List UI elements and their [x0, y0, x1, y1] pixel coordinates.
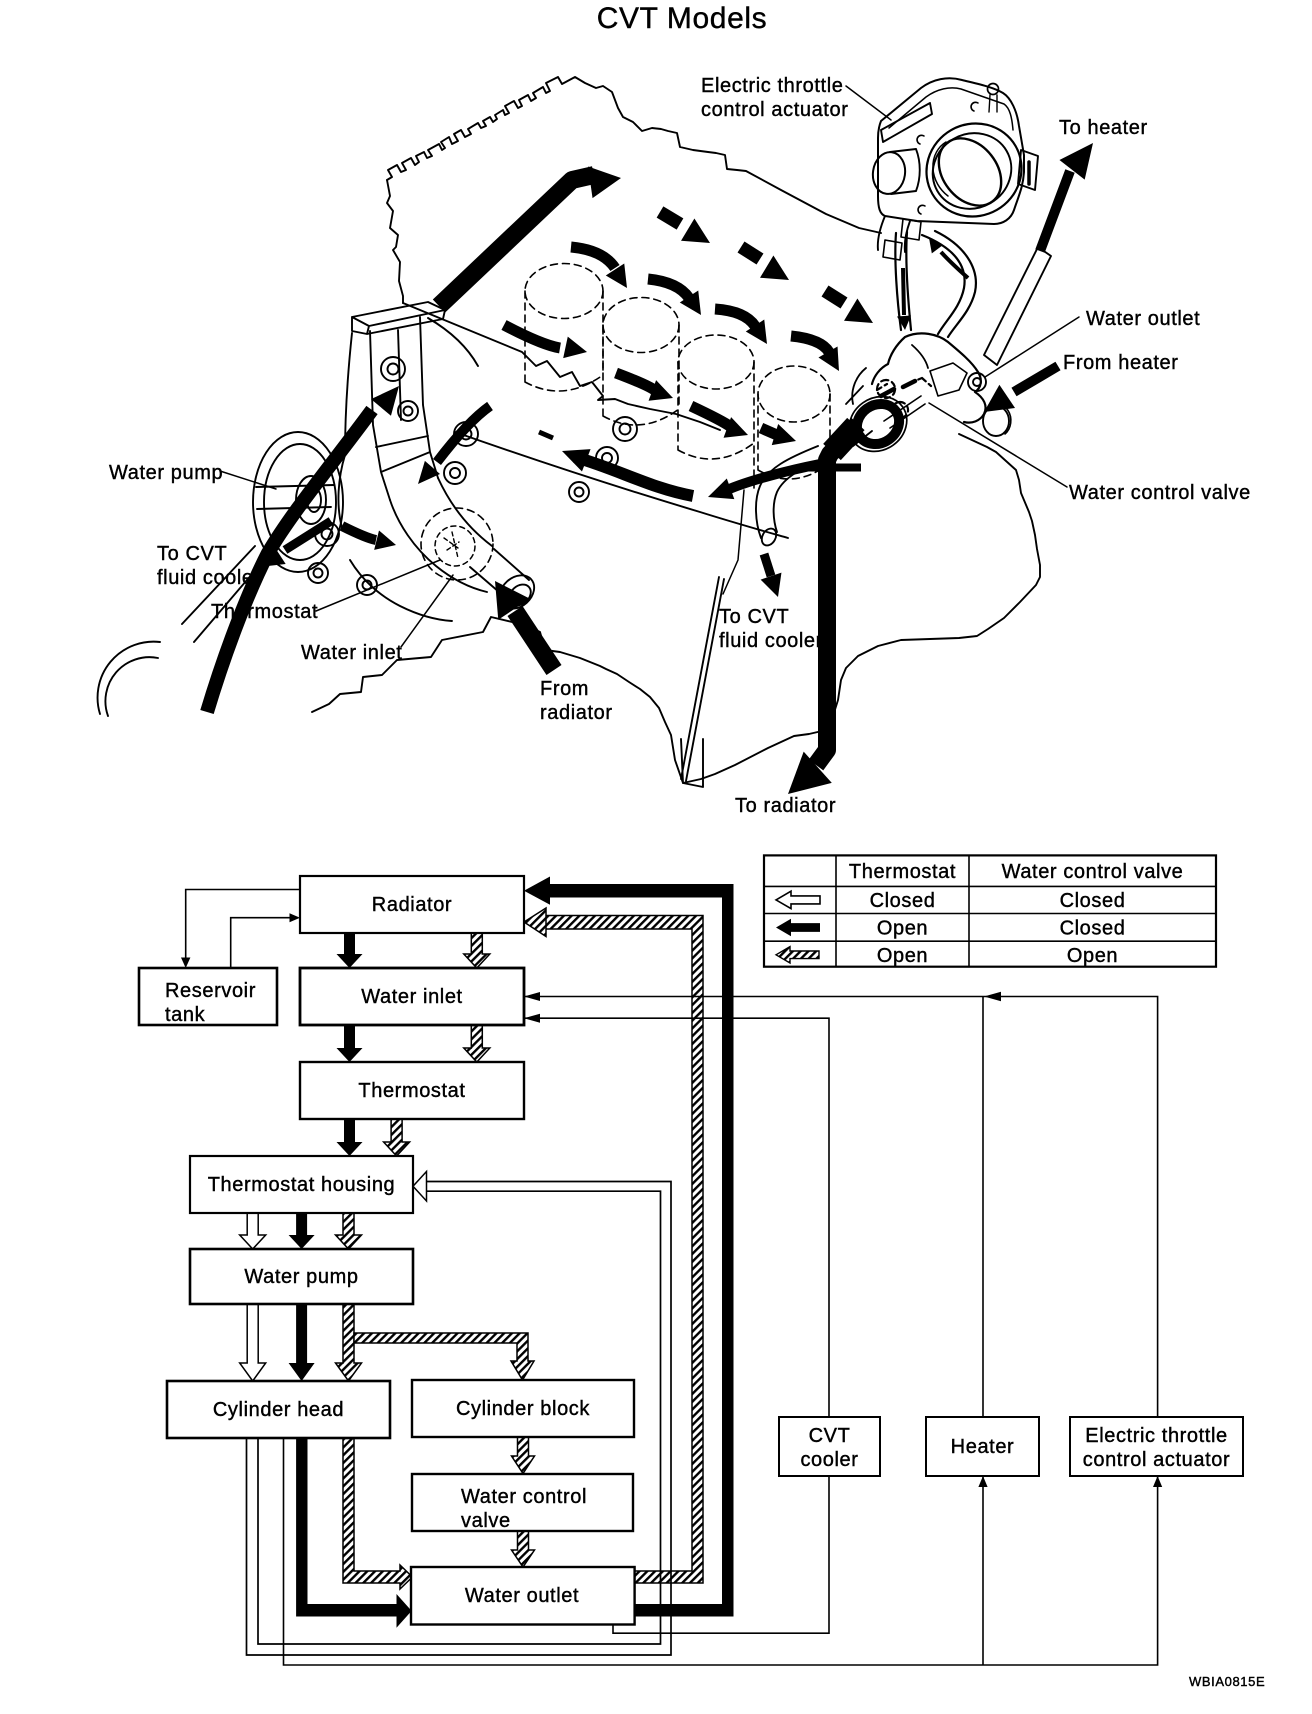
svg-text:Cylinder head: Cylinder head [213, 1399, 344, 1421]
svg-text:Water outlet: Water outlet [1086, 308, 1200, 330]
svg-text:Thermostat housing: Thermostat housing [208, 1174, 396, 1196]
svg-text:valve: valve [461, 1510, 511, 1532]
svg-text:Thermostat: Thermostat [849, 861, 956, 883]
svg-text:From: From [540, 678, 589, 700]
svg-text:Thermostat: Thermostat [211, 601, 318, 623]
svg-text:To radiator: To radiator [735, 795, 836, 817]
svg-text:Open: Open [877, 945, 928, 967]
svg-text:Cylinder block: Cylinder block [456, 1398, 590, 1420]
svg-text:To heater: To heater [1059, 117, 1148, 139]
svg-text:From heater: From heater [1063, 352, 1179, 374]
svg-text:Electric throttle: Electric throttle [701, 75, 843, 97]
svg-text:cooler: cooler [800, 1449, 858, 1471]
svg-text:Water control valve: Water control valve [1069, 482, 1251, 504]
svg-text:Reservoir: Reservoir [165, 980, 256, 1002]
svg-text:Water inlet: Water inlet [361, 986, 462, 1008]
svg-text:Open: Open [877, 918, 928, 940]
svg-text:CVT: CVT [809, 1425, 851, 1447]
svg-text:WBIA0815E: WBIA0815E [1189, 1674, 1265, 1689]
svg-text:Open: Open [1067, 945, 1118, 967]
svg-text:Thermostat: Thermostat [358, 1080, 465, 1102]
svg-text:fluid cooler: fluid cooler [719, 630, 823, 652]
svg-text:To CVT: To CVT [719, 606, 789, 628]
svg-text:Water outlet: Water outlet [465, 1585, 579, 1607]
svg-text:Closed: Closed [1060, 890, 1126, 912]
svg-text:control actuator: control actuator [1083, 1449, 1230, 1471]
svg-text:tank: tank [165, 1004, 206, 1026]
svg-text:radiator: radiator [540, 702, 613, 724]
svg-text:CVT Models: CVT Models [597, 2, 768, 35]
svg-text:Water control: Water control [461, 1486, 587, 1508]
svg-text:To CVT: To CVT [157, 543, 227, 565]
svg-text:Heater: Heater [951, 1436, 1015, 1458]
svg-text:control actuator: control actuator [701, 99, 848, 121]
svg-text:Water pump: Water pump [244, 1266, 358, 1288]
svg-text:Electric throttle: Electric throttle [1085, 1425, 1227, 1447]
svg-text:Radiator: Radiator [372, 894, 452, 916]
svg-text:Water control valve: Water control valve [1002, 861, 1184, 883]
svg-text:Closed: Closed [1060, 918, 1126, 940]
svg-text:fluid cooler: fluid cooler [157, 567, 261, 589]
svg-text:Closed: Closed [870, 890, 936, 912]
svg-text:Water pump: Water pump [109, 462, 223, 484]
svg-text:Water inlet: Water inlet [301, 642, 402, 664]
